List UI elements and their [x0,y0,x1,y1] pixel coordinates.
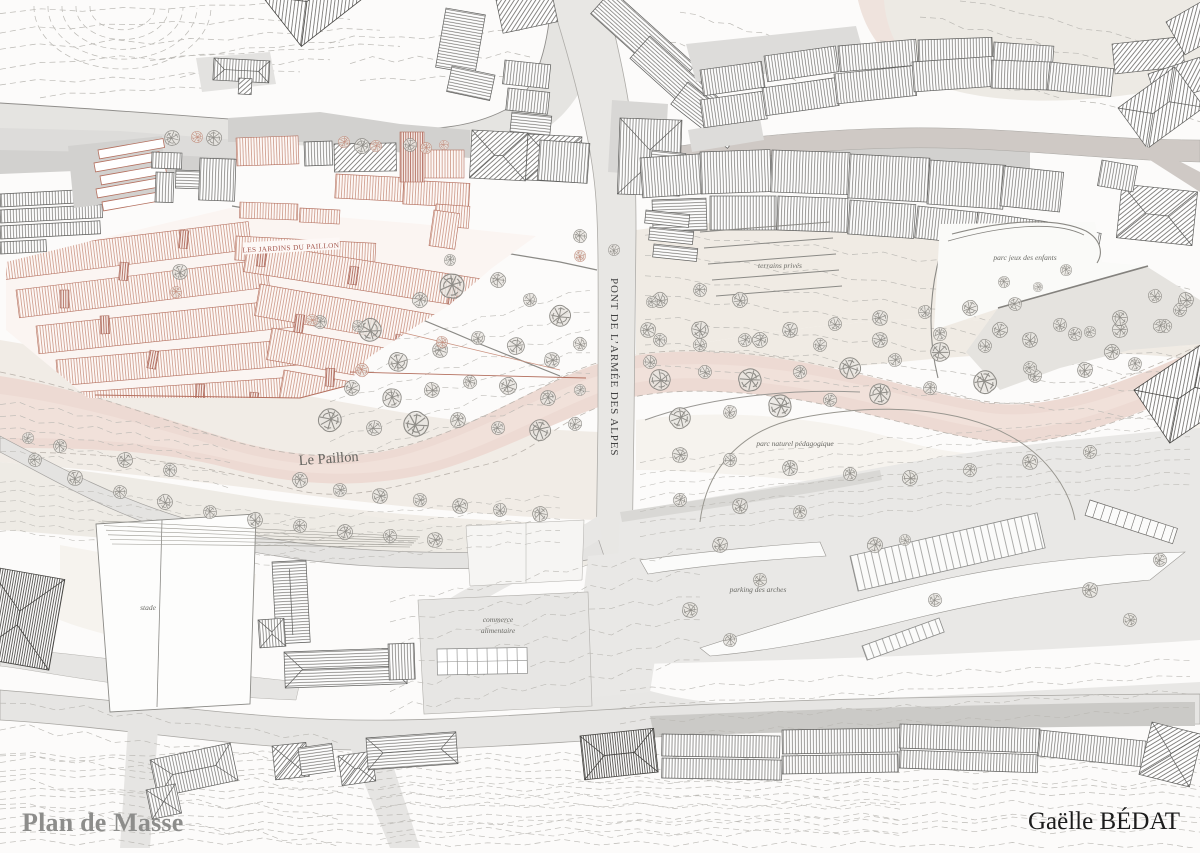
svg-text:parc naturel pédagogique: parc naturel pédagogique [755,439,834,448]
svg-text:terrains privés: terrains privés [758,261,802,270]
svg-text:parking des arches: parking des arches [729,585,787,594]
svg-text:stade: stade [140,603,157,612]
svg-text:parc jeux des enfants: parc jeux des enfants [992,253,1056,262]
svg-text:alimentaire: alimentaire [481,626,516,635]
svg-text:commerce: commerce [483,615,514,624]
svg-text:Gaëlle BÉDAT: Gaëlle BÉDAT [1028,807,1180,835]
svg-text:Plan de Masse: Plan de Masse [22,808,183,837]
svg-text:PONT DE L’ARMÉE DES ALPES: PONT DE L’ARMÉE DES ALPES [608,278,620,456]
